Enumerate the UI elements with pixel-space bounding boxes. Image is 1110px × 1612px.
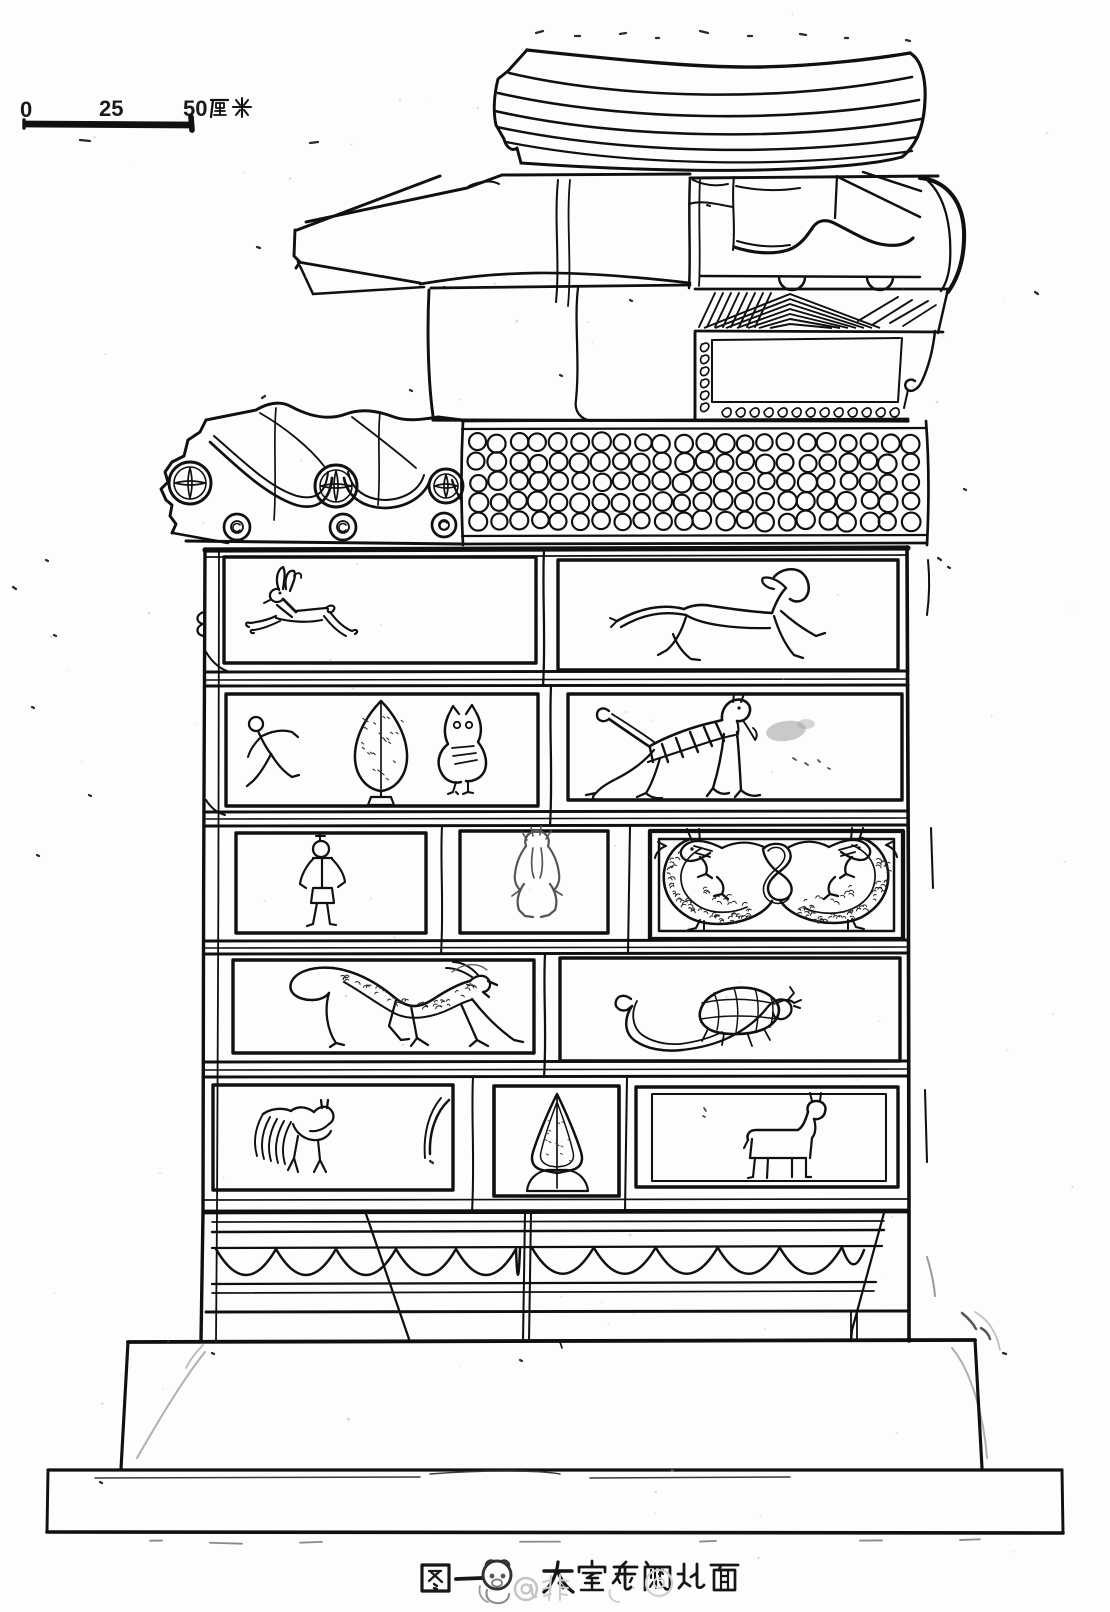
svg-text:50: 50 xyxy=(183,96,207,121)
svg-text:0: 0 xyxy=(20,97,32,122)
svg-text:25: 25 xyxy=(99,96,123,121)
